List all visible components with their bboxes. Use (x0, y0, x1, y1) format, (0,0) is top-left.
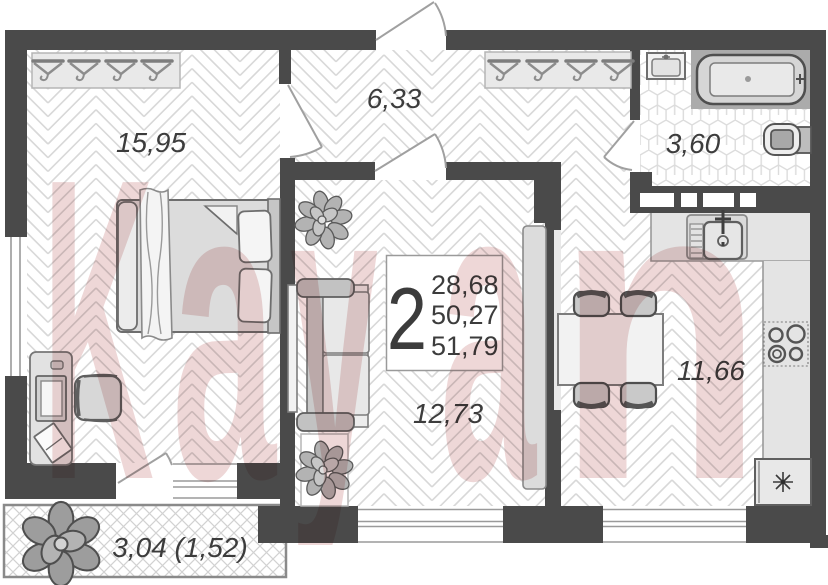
svg-text:n: n (556, 90, 764, 570)
svg-text:K: K (42, 90, 154, 570)
svg-text:a: a (440, 90, 537, 570)
svg-text:a: a (172, 90, 277, 570)
svg-text:2: 2 (387, 270, 427, 368)
svg-text:y: y (290, 90, 379, 572)
